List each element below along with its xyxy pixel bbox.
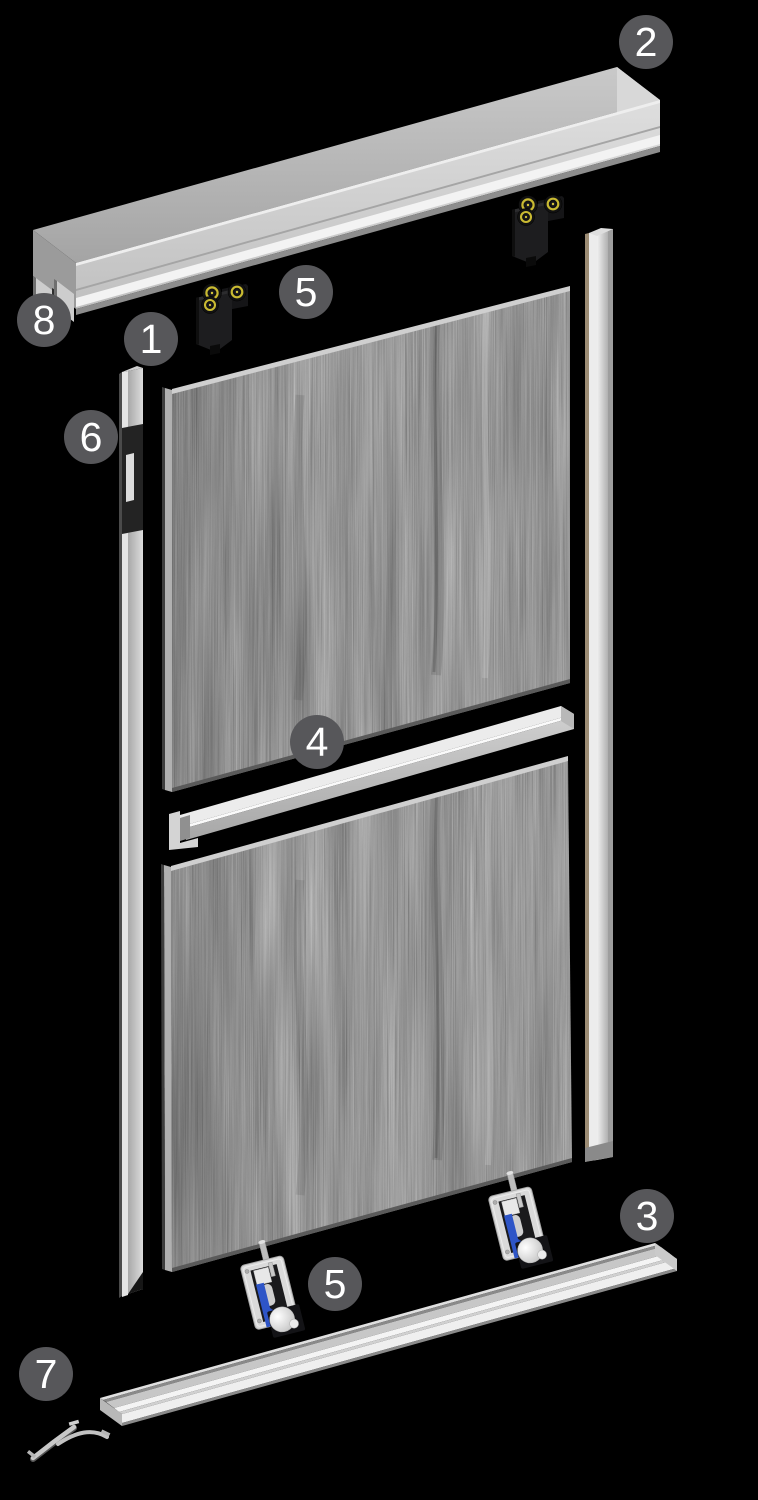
diagram-canvas: 2 8 1 5 6 4 3 5	[0, 0, 758, 1500]
callout-label: 5	[324, 1261, 347, 1307]
roller-adjuster-block	[254, 1267, 272, 1285]
callout-label: 5	[295, 269, 318, 315]
panel-left-side-face	[165, 388, 172, 792]
callout-label: 4	[306, 719, 329, 765]
profile-right-outer-edge	[608, 229, 613, 1158]
callout-5-top: 5	[279, 265, 333, 319]
callout-label: 2	[635, 19, 658, 65]
side-profile-left	[119, 366, 143, 1298]
callout-2: 2	[619, 15, 673, 69]
callout-5-bottom: 5	[308, 1257, 362, 1311]
exploded-diagram: 2 8 1 5 6 4 3 5	[0, 0, 758, 1500]
panel-left-side-face	[164, 865, 172, 1272]
callout-label: 3	[636, 1193, 659, 1239]
callout-4: 4	[290, 715, 344, 769]
roller-wheel	[202, 297, 219, 314]
callout-1: 1	[124, 312, 178, 366]
callout-8: 8	[17, 293, 71, 347]
callout-6: 6	[64, 410, 118, 464]
callout-label: 8	[33, 297, 56, 343]
callout-label: 7	[35, 1351, 58, 1397]
profile-right-light-face	[589, 232, 597, 1161]
profile-right-front-face	[597, 230, 608, 1160]
roller-wheel	[228, 283, 246, 301]
roller-body-edge	[196, 297, 199, 344]
middle-rail-left-notch	[180, 815, 190, 841]
profile-left-slot	[126, 453, 134, 502]
profile-left-outer-edge	[119, 372, 122, 1298]
callout-7: 7	[19, 1347, 73, 1401]
roller-wheel	[544, 195, 562, 213]
callout-label: 1	[140, 316, 163, 362]
roller-wheel	[518, 209, 535, 226]
roller-body-edge	[512, 209, 515, 256]
callout-3: 3	[620, 1189, 674, 1243]
side-profile-right	[585, 228, 613, 1162]
callout-label: 6	[80, 414, 103, 460]
panel-left-edge-line	[162, 387, 165, 790]
roller-adjuster-block	[502, 1198, 520, 1216]
profile-right-bronze-edge	[585, 233, 589, 1162]
